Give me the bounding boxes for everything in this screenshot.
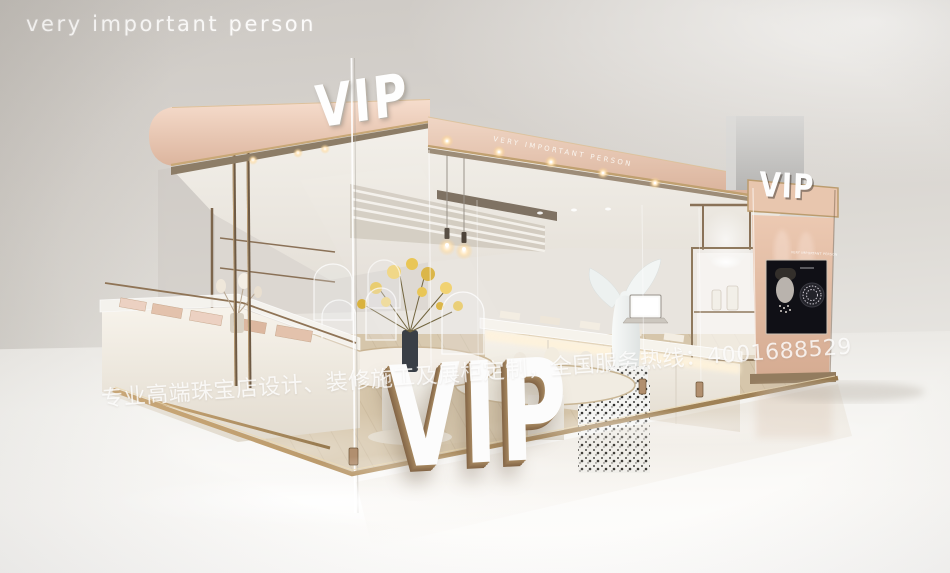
laptop (623, 295, 668, 323)
blade-sign-text: VIP (313, 60, 411, 142)
jewel-disc (800, 283, 824, 307)
kiosk-shadow (765, 382, 925, 402)
pillar-sign-text: VIP (759, 165, 815, 208)
brand-logo-text: very important person (26, 12, 316, 36)
render-scene: very important person VIP VERY IMPORTANT… (0, 0, 950, 573)
model-face (776, 277, 794, 303)
pillar-screen (766, 260, 827, 334)
glass-cloche (314, 264, 352, 320)
